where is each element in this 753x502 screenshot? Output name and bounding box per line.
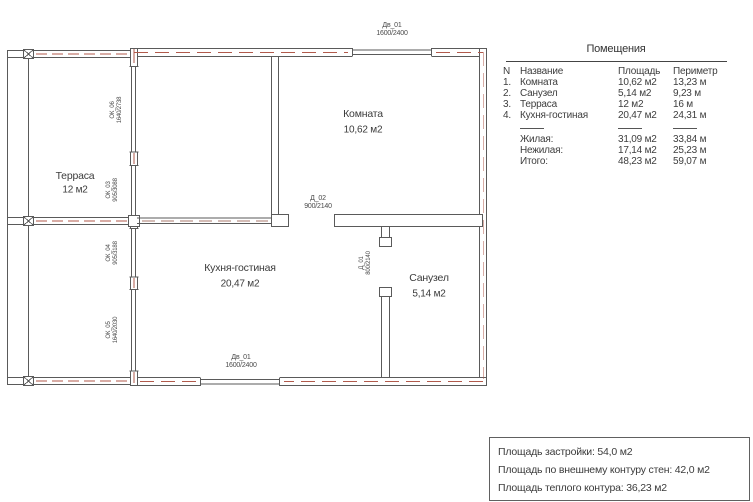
room-area-terrace: 12 м2: [62, 185, 87, 196]
table-total-row: Итого: 48,23 м2 59,07 м: [495, 156, 751, 167]
table-row: 2. Санузел 5,14 м2 9,23 м: [495, 88, 751, 99]
header-name: Название: [520, 66, 563, 77]
left-wall-windows: [129, 67, 140, 372]
open-boundary: [137, 218, 271, 224]
drawing-sheet: Терраса 12 м2 Комната 10,62 м2 Кухня-гос…: [0, 0, 753, 502]
window-label-ok06: ОК_061640/2738: [110, 97, 124, 124]
table-row: 3. Терраса 12 м2 16 м: [495, 99, 751, 110]
rooms-table-title: Помещения: [506, 43, 726, 55]
summary-line-outer-contour: Площадь по внешнему контуру стен: 42,0 м…: [498, 461, 749, 479]
room-label-bath: Санузел: [409, 272, 449, 284]
room-label-terrace: Терраса: [56, 170, 95, 182]
table-row: 1. Комната 10,62 м2 13,23 м: [495, 77, 751, 88]
room-door-label: Д_02900/2140: [304, 195, 332, 211]
window-label-ok03: ОК_03905/3088: [106, 178, 120, 201]
top-door-label: Дв_011600/2400: [376, 22, 407, 38]
bottom-door-opening: [200, 377, 280, 387]
summary-line-warm-contour: Площадь теплого контура: 36,23 м2: [498, 479, 749, 497]
top-door-opening: [352, 48, 432, 58]
floor-plan: [0, 0, 500, 410]
rooms-table: Помещения N Название Площадь Периметр 1.…: [495, 40, 751, 175]
bath-door-label: Д_01800/2140: [359, 251, 373, 274]
summary-line-built-area: Площадь застройки: 54,0 м2: [498, 443, 749, 461]
header-perimeter: Периметр: [673, 66, 718, 77]
summary-box: Площадь застройки: 54,0 м2 Площадь по вн…: [489, 437, 750, 501]
room-area-komnata: 10,62 м2: [344, 125, 383, 136]
interior-walls: [272, 57, 483, 378]
window-label-ok04: ОК_04905/3188: [106, 241, 120, 264]
header-area: Площадь: [618, 66, 660, 77]
table-header-row: N Название Площадь Периметр: [495, 66, 751, 77]
table-total-row: Жилая: 31,09 м2 33,84 м: [495, 134, 751, 145]
bottom-door-label: Дв_011600/2400: [225, 354, 256, 370]
header-n: N: [503, 66, 510, 77]
room-label-komnata: Комната: [343, 108, 383, 120]
room-label-kitchen: Кухня-гостиная: [204, 262, 276, 274]
rooms-table-rule: [506, 61, 727, 62]
table-total-row: Нежилая: 17,14 м2 25,23 м: [495, 145, 751, 156]
table-row: 4. Кухня-гостиная 20,47 м2 24,31 м: [495, 110, 751, 121]
room-area-kitchen: 20,47 м2: [221, 279, 260, 290]
window-label-ok05: ОК_051640/2030: [106, 317, 120, 344]
room-area-bath: 5,14 м2: [412, 289, 445, 300]
